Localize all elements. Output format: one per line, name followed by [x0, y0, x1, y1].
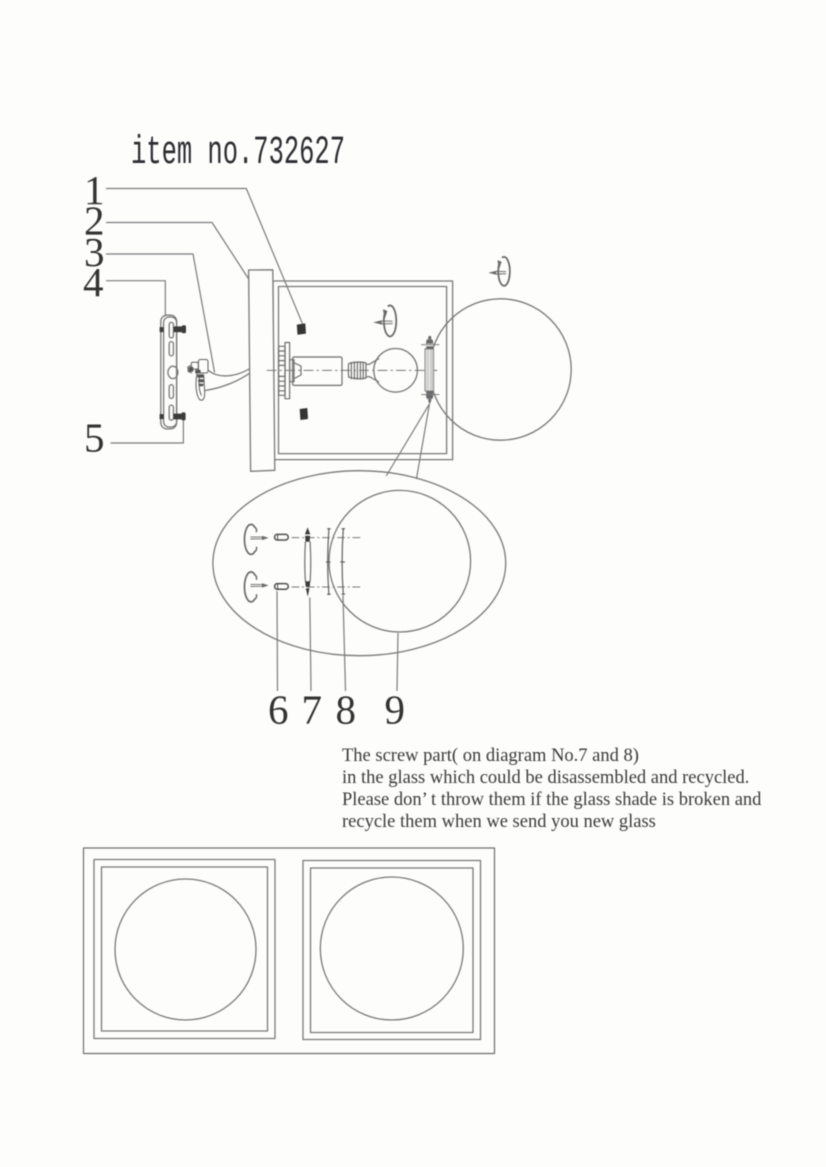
svg-text:The screw part( on diagram No.: The screw part( on diagram No.7 and 8) [342, 746, 639, 766]
svg-text:Please don’ t throw them if th: Please don’ t throw them if the glass sh… [342, 790, 762, 810]
svg-text:4: 4 [83, 259, 104, 305]
svg-text:item no.732627: item no.732627 [131, 131, 345, 176]
svg-text:9: 9 [385, 687, 406, 733]
svg-text:in the glass which could be di: in the glass which could be disassembled… [342, 768, 749, 788]
svg-text:7: 7 [302, 687, 323, 733]
svg-text:8: 8 [336, 687, 357, 733]
svg-text:6: 6 [268, 687, 289, 733]
svg-text:5: 5 [84, 415, 105, 461]
svg-text:recycle them when we send you: recycle them when we send you new glass [342, 812, 656, 832]
